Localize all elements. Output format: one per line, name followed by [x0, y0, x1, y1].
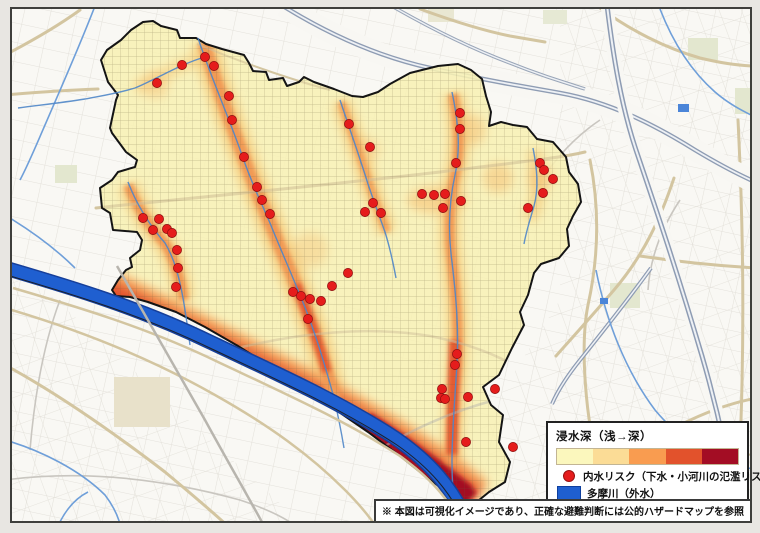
risk-point [200, 52, 209, 61]
risk-point [368, 198, 377, 207]
risk-point [463, 392, 472, 401]
risk-point [438, 203, 447, 212]
risk-point [344, 119, 353, 128]
risk-point [365, 142, 374, 151]
ramp-color-2 [629, 449, 665, 464]
risk-point [303, 314, 312, 323]
risk-point [455, 108, 464, 117]
risk-point [148, 225, 157, 234]
footnote: ※ 本図は可視化イメージであり、正確な避難判断には公的ハザードマップを参照 [374, 499, 750, 521]
hazard-map-page: 浸水深（浅→深） 内水リスク（下水・小河川の氾濫リスク）多摩川（外水） ※ 本図… [0, 0, 760, 533]
risk-point [440, 189, 449, 198]
risk-point [171, 282, 180, 291]
risk-point [360, 207, 369, 216]
risk-point [167, 228, 176, 237]
ramp-color-4 [702, 449, 738, 464]
risk-point [177, 60, 186, 69]
map-canvas: 浸水深（浅→深） 内水リスク（下水・小河川の氾濫リスク）多摩川（外水） ※ 本図… [10, 7, 752, 523]
risk-point [417, 189, 426, 198]
risk-point [227, 115, 236, 124]
risk-point [152, 78, 161, 87]
risk-point [376, 208, 385, 217]
risk-point [429, 190, 438, 199]
risk-point [548, 174, 557, 183]
legend-item-tamagawa: 多摩川（外水） [556, 487, 739, 499]
risk-point [539, 165, 548, 174]
risk-point [173, 263, 182, 272]
risk-point [437, 384, 446, 393]
risk-point [257, 195, 266, 204]
ramp-color-1 [593, 449, 629, 464]
risk-point [224, 91, 233, 100]
risk-point [316, 296, 325, 305]
risk-point [239, 152, 248, 161]
flood-depth-color-ramp [556, 448, 739, 465]
legend-title: 浸水深（浅→深） [556, 428, 739, 444]
risk-point [327, 281, 336, 290]
risk-point [452, 349, 461, 358]
risk-point [440, 394, 449, 403]
legend-item-label: 内水リスク（下水・小河川の氾濫リスク） [583, 469, 760, 484]
risk-point [451, 158, 460, 167]
risk-point [456, 196, 465, 205]
blue-swatch-icon [557, 486, 581, 500]
risk-point [461, 437, 470, 446]
legend-item-inland-risk: 内水リスク（下水・小河川の氾濫リスク） [556, 470, 739, 482]
risk-point [138, 213, 147, 222]
risk-point [209, 61, 218, 70]
risk-point [450, 360, 459, 369]
red-dot-icon [563, 470, 575, 482]
risk-point [538, 188, 547, 197]
legend: 浸水深（浅→深） 内水リスク（下水・小河川の氾濫リスク）多摩川（外水） [546, 421, 749, 503]
risk-point [455, 124, 464, 133]
risk-point [490, 384, 499, 393]
risk-point [172, 245, 181, 254]
risk-point [154, 214, 163, 223]
pond [678, 104, 689, 112]
ramp-color-0 [557, 449, 593, 464]
risk-point [305, 294, 314, 303]
risk-point [296, 291, 305, 300]
risk-point [508, 442, 517, 451]
risk-point [252, 182, 261, 191]
risk-point [343, 268, 352, 277]
ramp-color-3 [666, 449, 702, 464]
risk-point [265, 209, 274, 218]
risk-point [523, 203, 532, 212]
pond [600, 298, 608, 304]
